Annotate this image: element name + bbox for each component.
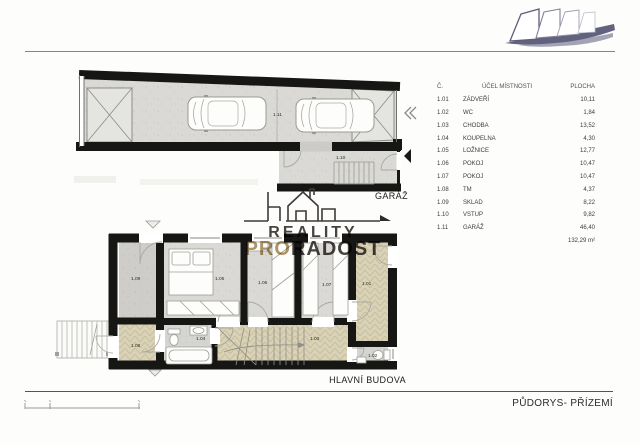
header-area: PLOCHA [551, 84, 595, 90]
room-area: 8,22 [551, 200, 595, 206]
room-schedule-table: Č. ÚČEL MÍSTNOSTI PLOCHA 1.01ZÁDVEŘÍ10,1… [425, 81, 595, 247]
room-label: 1.11 [273, 112, 282, 118]
room-label: 1.03 [310, 336, 320, 342]
room-label: 1.09 [131, 276, 141, 282]
room-number: 1.09 [437, 200, 463, 206]
table-row: 1.06POKOJ10,47 [425, 158, 595, 171]
room-area: 10,47 [551, 174, 595, 180]
room-area: 13,52 [551, 123, 595, 129]
room-label: 1.10 [336, 155, 346, 161]
room-label: 1.04 [196, 336, 206, 342]
watermark-pro: PRO [245, 238, 291, 260]
room-number: 1.04 [437, 136, 463, 142]
table-row: 1.05LOŽNICE12,77 [425, 145, 595, 158]
table-row: 1.11GARÁŽ46,40 [425, 222, 595, 235]
watermark-radost: RADOST [291, 238, 381, 260]
room-name: TM [463, 187, 551, 193]
room-area: 1,84 [551, 110, 595, 116]
room-number: 1.03 [437, 123, 463, 129]
room-area: 46,40 [551, 225, 595, 231]
entrance-marker-icon [146, 221, 160, 228]
room-label: 1.07 [322, 282, 332, 288]
room-label: 1.05 [215, 276, 225, 282]
table-row: 1.09SKLAD8,22 [425, 196, 595, 209]
page-title: PŮDORYS- PŘÍZEMÍ [420, 398, 613, 409]
car-icon [188, 95, 266, 132]
room-number: 1.06 [437, 161, 463, 167]
room-name: WC [463, 110, 551, 116]
brand-logo-icon [505, 9, 615, 47]
car-icon [296, 97, 374, 134]
room-name: GARÁŽ [463, 225, 551, 231]
room-number: 1.07 [437, 174, 463, 180]
room-name: POKOJ [463, 174, 551, 180]
room-area: 12,77 [551, 148, 595, 154]
table-row: 1.03CHODBA13,52 [425, 119, 595, 132]
room-name: LOŽNICE [463, 148, 551, 154]
room-number: 1.02 [437, 110, 463, 116]
entry-arrow-icon [404, 149, 411, 163]
table-header-row: Č. ÚČEL MÍSTNOSTI PLOCHA [425, 81, 595, 94]
room-label: 1.01 [362, 281, 372, 287]
header-number: Č. [437, 84, 463, 90]
table-row: 1.07POKOJ10,47 [425, 171, 595, 184]
table-row: 1.08TM4,37 [425, 183, 595, 196]
garage-plan: 1.11 1.10 [74, 75, 416, 189]
room-area: 10,11 [551, 97, 595, 103]
room-area: 4,37 [551, 187, 595, 193]
table-total-row: 132,29 m² [425, 235, 595, 248]
table-row: 1.02WC1,84 [425, 107, 595, 120]
room-name: POKOJ [463, 161, 551, 167]
room-name: VSTUP [463, 212, 551, 218]
scale-bar [24, 400, 140, 409]
room-number: 1.11 [437, 225, 463, 231]
total-area: 132,29 m² [568, 238, 595, 244]
agency-watermark: REALITY PRORADOST [228, 225, 398, 259]
room-number: 1.10 [437, 212, 463, 218]
south-marker-icon [149, 370, 161, 376]
room-name: CHODBA [463, 123, 551, 129]
room-area: 4,30 [551, 136, 595, 142]
room-label: 1.02 [368, 353, 378, 359]
garage-plan-title: GARÁŽ [330, 191, 408, 201]
room-name: SKLAD [463, 200, 551, 206]
header-purpose: ÚČEL MÍSTNOSTI [463, 84, 551, 90]
room-name: ZÁDVEŘÍ [463, 97, 551, 103]
room-number: 1.05 [437, 148, 463, 154]
floor-plan-sheet: { "header": { "page_title": "PŮDORYS- PŘ… [0, 0, 640, 445]
double-chevron-left-icon [405, 107, 416, 119]
room-label: 1.08 [131, 343, 141, 349]
room-area: 9,82 [551, 212, 595, 218]
room-area: 10,47 [551, 161, 595, 167]
watermark-line2: PRORADOST [228, 240, 398, 259]
exterior-stairs [55, 321, 111, 358]
table-row: 1.04KOUPELNA4,30 [425, 132, 595, 145]
garage-gate-left [87, 88, 132, 142]
table-row: 1.01ZÁDVEŘÍ10,11 [425, 94, 595, 107]
room-number: 1.08 [437, 187, 463, 193]
main-building-plan-title: HLAVNÍ BUDOVA [280, 375, 406, 385]
table-row: 1.10VSTUP9,82 [425, 209, 595, 222]
room-name: KOUPELNA [463, 136, 551, 142]
room-label: 1.06 [258, 280, 268, 286]
room-number: 1.01 [437, 97, 463, 103]
